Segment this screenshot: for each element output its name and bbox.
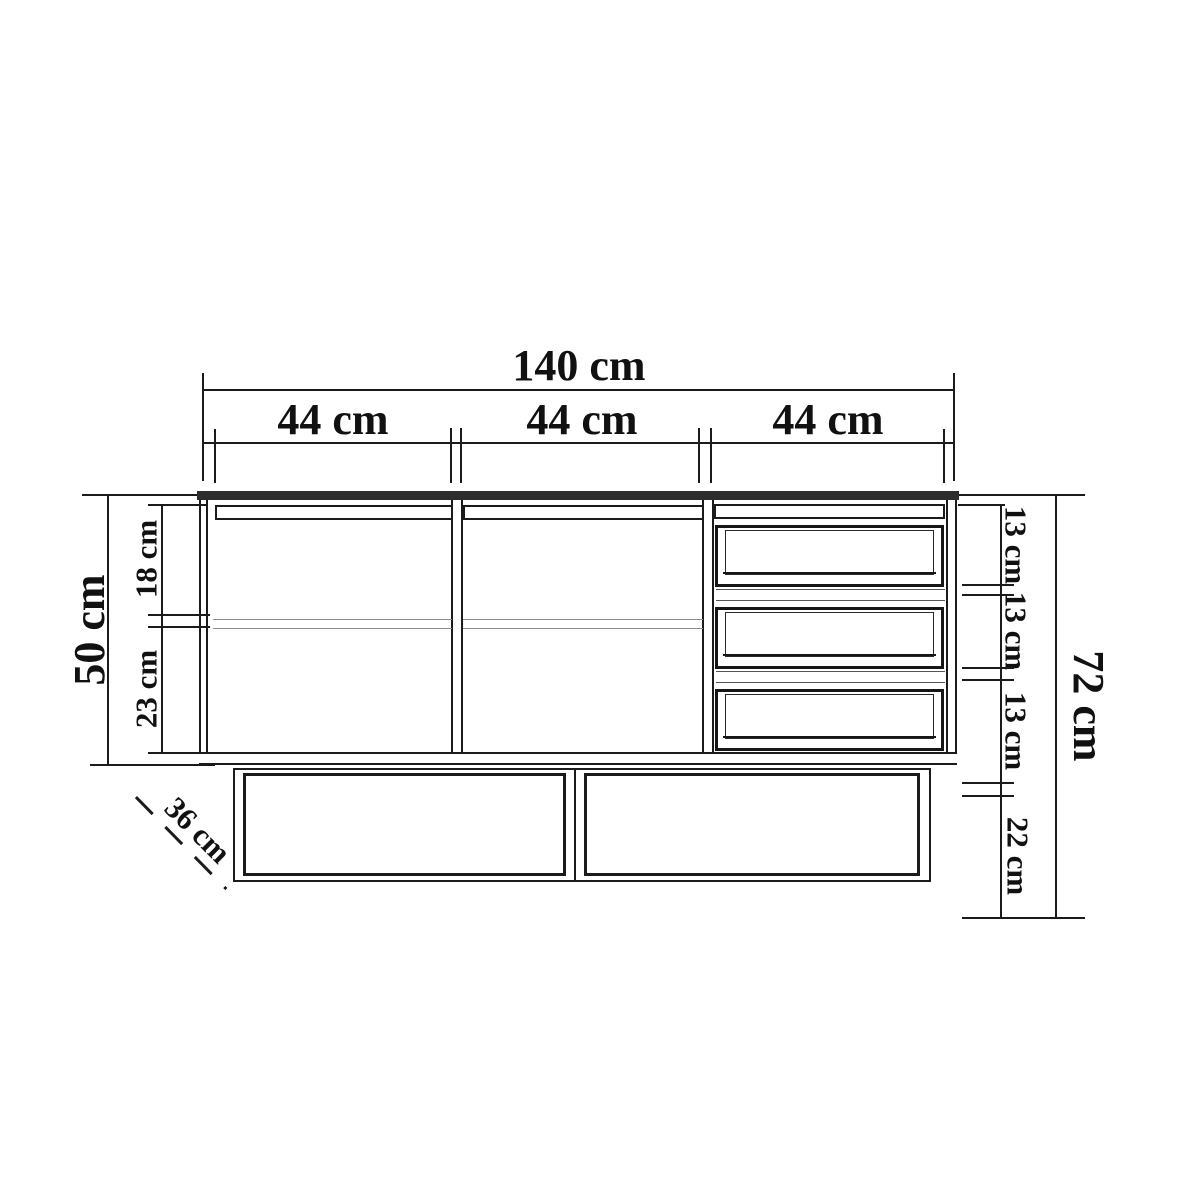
dim-drawer-height-label-2: 13 cm — [1001, 592, 1032, 670]
dim-tick — [450, 428, 452, 483]
dim-tick — [82, 494, 207, 496]
dim-tick — [962, 679, 1014, 681]
dim-line-sections — [203, 442, 955, 444]
dim-tick — [460, 428, 462, 483]
dim-tick — [962, 795, 1014, 797]
dim-tick — [962, 917, 1085, 919]
right-side-panel — [946, 500, 948, 753]
dim-tick — [943, 429, 945, 483]
furniture-dimension-diagram: 140 cm 44 cm 44 cm 44 cm 50 cm 18 cm 23 … — [0, 0, 1181, 1181]
drawer-1-front-panel — [725, 530, 934, 575]
dim-tick — [962, 667, 1014, 669]
drawer-1 — [715, 525, 944, 587]
dim-section-width-label-1: 44 cm — [277, 398, 388, 442]
drawer-gap-line — [716, 671, 945, 672]
dim-tick — [698, 428, 700, 483]
dim-body-height-label: 50 cm — [68, 574, 112, 685]
dim-line-total-width — [203, 389, 955, 391]
dim-tick — [90, 764, 215, 766]
dim-line-body-height — [107, 495, 109, 766]
shelf-section-1 — [213, 628, 452, 629]
dim-section-width-label-3: 44 cm — [772, 398, 883, 442]
drawer-2 — [715, 607, 944, 669]
dim-tick — [710, 428, 712, 483]
shelf-section-2 — [463, 619, 703, 620]
dim-line-inner-right — [1000, 505, 1002, 918]
dim-tick — [958, 504, 1005, 506]
top-rail-section-3 — [714, 504, 945, 519]
dim-tick — [214, 429, 216, 483]
drawer-3-front-panel — [725, 694, 934, 739]
dim-tick — [962, 584, 1014, 586]
dim-drawer-height-label-1: 13 cm — [1001, 506, 1032, 584]
cabinet-bottom-panel — [199, 752, 957, 754]
drawer-1-handle — [723, 572, 936, 574]
cabinet-tabletop — [197, 491, 959, 500]
dim-tick — [953, 373, 955, 481]
dim-section-width-label-2: 44 cm — [526, 398, 637, 442]
left-side-panel — [206, 500, 208, 753]
left-side-panel — [199, 500, 201, 753]
dim-tick — [962, 594, 1014, 596]
drawer-2-front-panel — [725, 612, 934, 657]
base-unit-center-divider — [574, 770, 576, 880]
cabinet-bottom-panel — [199, 763, 957, 765]
divider-2 — [712, 500, 714, 753]
drawer-gap-line — [716, 589, 945, 590]
dim-tick — [957, 494, 1085, 496]
divider-1 — [451, 500, 453, 753]
dim-shelf-lower-label: 23 cm — [131, 650, 162, 728]
divider-1 — [461, 500, 463, 753]
shelf-section-2 — [463, 628, 703, 629]
drawer-3-handle — [723, 736, 936, 738]
dim-line-total-height — [1055, 495, 1057, 918]
drawer-gap-line — [716, 682, 945, 683]
dim-shelf-upper-label: 18 cm — [131, 520, 162, 598]
dim-base-height-label: 22 cm — [1003, 817, 1034, 895]
right-side-panel — [955, 500, 957, 753]
drawer-2-handle — [723, 654, 936, 656]
dim-total-width-label: 140 cm — [512, 344, 645, 388]
drawer-3 — [715, 689, 944, 751]
shelf-section-1 — [213, 619, 452, 620]
base-door-right — [584, 773, 920, 876]
base-door-left — [243, 773, 566, 876]
top-rail-section-2 — [463, 505, 704, 520]
divider-2 — [702, 500, 704, 753]
top-rail-section-1 — [215, 505, 453, 520]
dim-line-inner-left — [161, 505, 163, 754]
dim-tick — [962, 782, 1014, 784]
dim-total-height-label: 72 cm — [1066, 650, 1110, 761]
dim-tick — [202, 373, 204, 481]
drawer-gap-line — [716, 600, 945, 601]
dim-drawer-height-label-3: 13 cm — [1001, 692, 1032, 770]
